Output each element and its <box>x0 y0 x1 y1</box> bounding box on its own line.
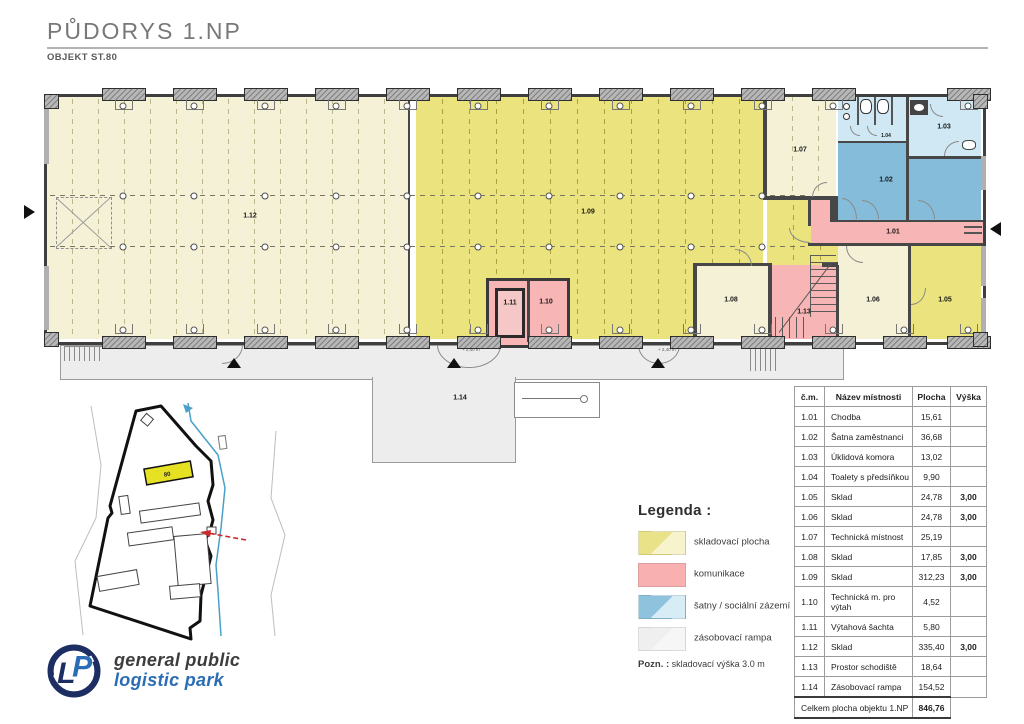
column-symbol <box>191 327 198 334</box>
column-marker <box>244 336 288 349</box>
table-header-cell: Plocha <box>913 387 951 407</box>
grid-node <box>120 193 127 200</box>
room-label-1-04: 1.04 <box>881 133 891 139</box>
grid-node <box>546 244 553 251</box>
column-symbol <box>830 327 837 334</box>
ramp-protrusion <box>372 377 516 463</box>
column-symbol <box>688 327 695 334</box>
table-row: 1.03Úklidová komora13,02 <box>795 447 987 467</box>
urinal-fixture <box>843 113 850 120</box>
ramp-steps-right <box>750 346 780 371</box>
column-marker <box>528 336 572 349</box>
window-strip <box>981 156 986 190</box>
window-strip <box>981 298 986 334</box>
legend-swatch <box>638 531 686 555</box>
column-symbol <box>759 103 766 110</box>
column-symbol <box>404 103 411 110</box>
room-1-01-corridor <box>838 222 983 243</box>
column-symbol <box>617 103 624 110</box>
legend-item-label: skladovací plocha <box>694 537 770 548</box>
site-building <box>174 534 211 587</box>
grid-node <box>262 244 269 251</box>
grid-node <box>617 244 624 251</box>
column-symbol <box>759 327 766 334</box>
corner-column <box>44 94 59 109</box>
wc-partition <box>874 97 876 125</box>
grid-node <box>546 193 553 200</box>
wc-partition <box>891 97 893 125</box>
table-row: 1.06Sklad24,783,00 <box>795 507 987 527</box>
grid-node <box>333 193 340 200</box>
wall <box>909 156 981 159</box>
site-building <box>119 495 130 514</box>
table-header-cell: Výška <box>951 387 987 407</box>
room-label-1-06: 1.06 <box>866 297 880 304</box>
table-row: 1.14Zásobovací rampa154,52 <box>795 677 987 698</box>
window-strip <box>44 104 49 164</box>
logo-monogram-p: P <box>72 651 93 684</box>
column-symbol <box>475 103 482 110</box>
column-marker <box>102 336 146 349</box>
site-building <box>170 584 201 600</box>
table-row: 1.09Sklad312,233,00 <box>795 567 987 587</box>
room-label-1-09: 1.09 <box>581 209 595 216</box>
wall <box>763 97 767 200</box>
column-symbol <box>191 103 198 110</box>
elevator-shaft-car <box>495 288 525 338</box>
table-total-row: Celkem plocha objektu 1.NP846,76 <box>795 697 987 718</box>
column-symbol <box>262 103 269 110</box>
column-marker <box>883 336 927 349</box>
column-symbol <box>333 103 340 110</box>
cleaning-sink-basin <box>914 104 924 111</box>
wall <box>838 141 906 143</box>
grid-node <box>475 244 482 251</box>
wall <box>693 263 772 266</box>
logo-text: general public logistic park <box>114 650 240 690</box>
site-building <box>218 436 227 450</box>
room-label-1-05: 1.05 <box>938 297 952 304</box>
entrance-arrow-west <box>24 205 35 219</box>
column-marker <box>599 336 643 349</box>
wall <box>808 200 811 226</box>
column-marker <box>741 336 785 349</box>
room-label-1-01: 1.01 <box>886 229 900 236</box>
logo-line1: general public <box>114 650 240 670</box>
grid-node <box>759 193 766 200</box>
legend-note-text: skladovací výška 3.0 m <box>672 659 765 669</box>
grid-node <box>333 244 340 251</box>
company-logo: L P general public logistic park <box>44 641 364 705</box>
column-symbol <box>262 327 269 334</box>
room-table: č.m.Název místnostiPlochaVýška 1.01Chodb… <box>794 386 987 719</box>
column-symbol <box>120 103 127 110</box>
room-label-1-03: 1.03 <box>937 124 951 131</box>
column-symbol <box>965 327 972 334</box>
column-marker <box>315 336 359 349</box>
grid-node <box>617 193 624 200</box>
table-header-cell: Název místnosti <box>825 387 913 407</box>
room-label-1-08: 1.08 <box>724 297 738 304</box>
ramp-slope-line <box>522 398 580 399</box>
column-marker <box>386 336 430 349</box>
legend-item-label: šatny / sociální zázemí <box>694 601 790 612</box>
wc-partition <box>857 97 859 125</box>
table-row: 1.04Toalety s předsíňkou9,90 <box>795 467 987 487</box>
table-row: 1.08Sklad17,853,00 <box>795 547 987 567</box>
window-strip <box>981 246 986 286</box>
grid-node <box>262 193 269 200</box>
entrance-arrow-south <box>651 358 665 368</box>
logo-emblem: L P <box>44 641 104 701</box>
legend-swatch <box>638 563 686 587</box>
entrance-arrow-south <box>227 358 241 368</box>
corner-column <box>973 94 988 109</box>
grid-node <box>404 193 411 200</box>
elevator-divider-wall <box>527 281 530 342</box>
entrance-arrow-east <box>990 222 1001 236</box>
entrance-arrow-south <box>447 358 461 368</box>
column-symbol <box>120 327 127 334</box>
corridor-exit-door <box>964 226 982 228</box>
column-symbol <box>830 103 837 110</box>
column-marker <box>670 336 714 349</box>
grid-node <box>120 244 127 251</box>
toilet-fixture <box>860 99 872 114</box>
column-marker <box>173 336 217 349</box>
contour-line <box>271 431 285 636</box>
grid-node <box>688 244 695 251</box>
legend-item-label: komunikace <box>694 569 745 580</box>
column-symbol <box>404 327 411 334</box>
room-label-1-13: 1.13 <box>797 309 811 316</box>
table-row: 1.12Sklad335,403,00 <box>795 637 987 657</box>
room-label-1-12: 1.12 <box>243 213 257 220</box>
table-row: 1.05Sklad24,783,00 <box>795 487 987 507</box>
grid-node <box>759 244 766 251</box>
ramp-slope-dot <box>580 395 588 403</box>
column-symbol <box>546 327 553 334</box>
washbasin <box>962 140 976 150</box>
table-header-row: č.m.Název místnostiPlochaVýška <box>795 387 987 407</box>
grid-node <box>688 193 695 200</box>
room-label-1-11: 1.11 <box>503 300 516 307</box>
table-row: 1.13Prostor schodiště18,64 <box>795 657 987 677</box>
column-symbol <box>688 103 695 110</box>
room-table-body: 1.01Chodba15,611.02Šatna zaměstnanci36,6… <box>795 407 987 719</box>
room-label-1-02: 1.02 <box>879 177 893 184</box>
corner-column <box>973 332 988 347</box>
room-label-1-10: 1.10 <box>539 299 553 306</box>
wall <box>830 200 838 222</box>
corridor-exit-door <box>964 232 982 234</box>
table-row: 1.02Šatna zaměstnanci36,68 <box>795 427 987 447</box>
urinal-fixture <box>843 103 850 110</box>
table-row: 1.11Výtahová šachta5,80 <box>795 617 987 637</box>
grid-node <box>404 244 411 251</box>
window-strip <box>44 266 49 330</box>
table-header-cell: č.m. <box>795 387 825 407</box>
table-row: 1.01Chodba15,61 <box>795 407 987 427</box>
column-symbol <box>475 327 482 334</box>
room-label-1-07: 1.07 <box>793 147 807 154</box>
corner-column <box>44 332 59 347</box>
legend-note: Pozn. : skladovací výška 3.0 m <box>638 659 765 670</box>
column-symbol <box>617 327 624 334</box>
column-symbol <box>546 103 553 110</box>
stair-treads-lower <box>775 317 810 338</box>
legend-note-label: Pozn. : <box>638 659 669 670</box>
table-row: 1.07Technická místnost25,19 <box>795 527 987 547</box>
grid-node <box>191 244 198 251</box>
grid-node <box>191 193 198 200</box>
column-symbol <box>965 103 972 110</box>
toilet-fixture <box>877 99 889 114</box>
column-symbol <box>901 327 908 334</box>
entrance-marker-line <box>208 533 246 540</box>
site-boundary <box>90 406 213 639</box>
grid-node <box>475 193 482 200</box>
column-marker <box>812 336 856 349</box>
legend-swatch <box>638 627 686 651</box>
column-marker <box>457 336 501 349</box>
wall <box>838 220 983 222</box>
logo-line2: logistic park <box>114 670 240 690</box>
ramp-steps-left <box>64 346 104 361</box>
table-row: 1.10Technická m. pro výtah4,52 <box>795 587 987 617</box>
wall <box>808 243 983 246</box>
room-label-1-14: 1.14 <box>453 395 467 402</box>
legend-swatch <box>638 595 686 619</box>
legend-item-label: zásobovací rampa <box>694 633 772 644</box>
site-plan: 80 <box>68 388 308 660</box>
column-symbol <box>333 327 340 334</box>
